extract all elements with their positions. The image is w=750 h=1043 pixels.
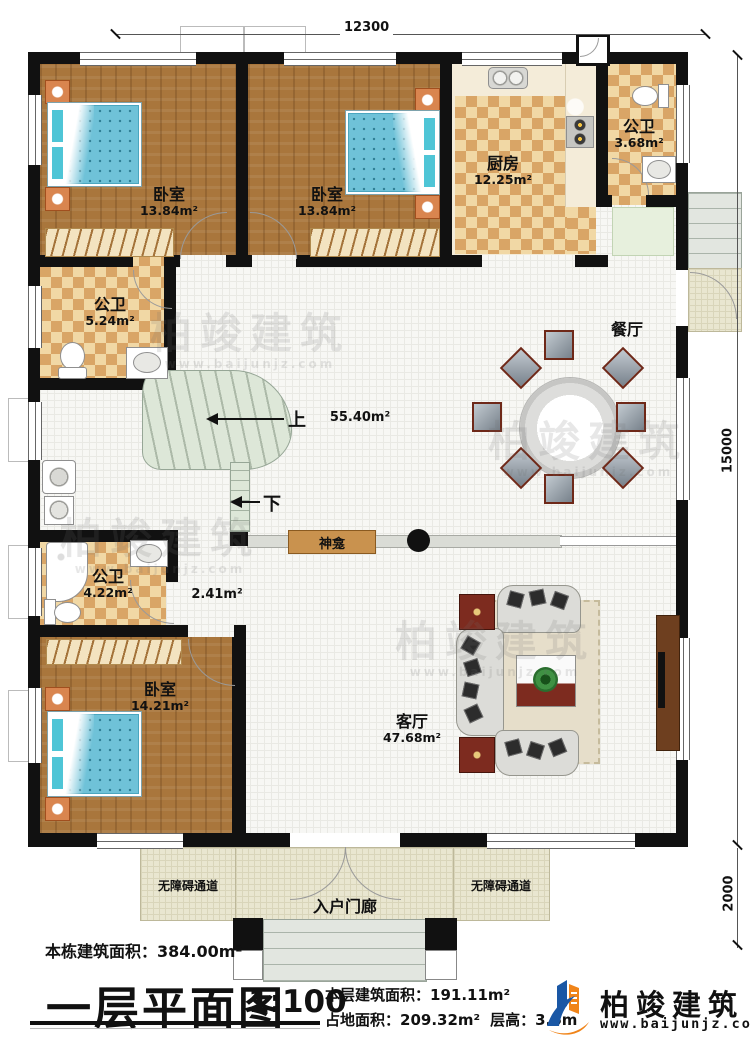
hall-area-label: 55.40m² xyxy=(330,410,390,425)
floor-area-value: 191.11m² xyxy=(430,986,510,1004)
kitchen-tiles2 xyxy=(567,207,596,254)
nightstand-icon xyxy=(45,687,70,711)
dim-line-top xyxy=(115,34,705,35)
kitchen-label: 厨房 12.25m² xyxy=(474,155,532,188)
ramp-right-label: 无障碍通道 xyxy=(471,877,531,894)
side-door-opening xyxy=(676,270,688,326)
pillow xyxy=(51,109,64,143)
side-steps xyxy=(688,192,742,270)
land-area-row: 占地面积：209.32m² 层高：3.6m xyxy=(325,1009,577,1030)
toilet-icon xyxy=(60,342,85,370)
wardrobe-icon xyxy=(45,228,174,257)
wall-bed2-kitchen xyxy=(440,52,452,258)
bed-icon xyxy=(47,102,142,187)
logo-glyph xyxy=(543,978,595,1036)
plant-icon xyxy=(533,667,558,692)
sofa-pillow xyxy=(529,589,547,607)
toilet-icon xyxy=(632,86,658,106)
entry-opening xyxy=(290,833,400,847)
wall-bath-top-bottom1 xyxy=(596,195,612,207)
wall-bed1-bed2 xyxy=(236,52,248,258)
dining-label: 餐厅 xyxy=(611,321,643,339)
stair-up-label: 上 xyxy=(288,406,306,432)
window-bed1 xyxy=(80,52,196,66)
bath-top-landing xyxy=(612,207,674,256)
sink-icon xyxy=(133,352,161,373)
porch-label: 入户门廊 xyxy=(313,893,377,917)
window-left-3 xyxy=(28,402,42,460)
land-area-pair: 占地面积：209.32m² xyxy=(325,1009,480,1030)
dining-chair-icon xyxy=(616,402,646,432)
washing-machine-icon xyxy=(42,460,76,494)
floor-plan-page: 神龛 xyxy=(0,0,750,1043)
porch-column-right-base xyxy=(425,950,457,980)
end-table-icon xyxy=(459,737,495,773)
bed-sheet xyxy=(64,103,94,186)
end-table-icon xyxy=(459,594,495,630)
company-logo-icon xyxy=(543,978,595,1036)
nightstand-icon xyxy=(45,187,70,211)
wardrobe-icon xyxy=(46,639,182,665)
shrine-label: 神龛 xyxy=(319,533,345,552)
bay-top-1 xyxy=(180,26,244,54)
nightstand-icon xyxy=(415,88,440,112)
window-left-4 xyxy=(28,548,42,616)
wardrobe-icon xyxy=(310,228,440,257)
dim-right-label: 15000 xyxy=(721,423,736,479)
window-left-1 xyxy=(28,95,42,165)
living-label: 客厅 47.68m² xyxy=(383,713,441,746)
porch-column-right xyxy=(425,918,457,950)
dim-top-label: 12300 xyxy=(340,20,393,35)
bay-top-2 xyxy=(244,26,306,54)
wall-kitchen-bath xyxy=(596,64,608,207)
pillow xyxy=(51,756,64,790)
nightstand-icon xyxy=(45,797,70,821)
dim-line-bottom-right xyxy=(737,848,738,948)
floor-area-label: 本层建筑面积： xyxy=(325,984,430,1005)
stove-icon xyxy=(566,116,594,148)
bed-sheet xyxy=(64,712,94,796)
dim-bottom-right-label: 2000 xyxy=(722,870,737,918)
bath-mid-label: 公卫 5.24m² xyxy=(85,296,134,329)
wall-bed3-top2 xyxy=(234,625,246,637)
title-underline xyxy=(30,1021,320,1025)
bedroom3-label: 卧室 14.21m² xyxy=(131,681,189,714)
toilet-icon xyxy=(54,602,81,623)
half-wall-window xyxy=(560,536,676,546)
window-right-dining xyxy=(676,378,690,500)
nightstand-icon xyxy=(45,80,70,104)
window-left-5 xyxy=(28,688,42,763)
bath-low-label: 公卫 4.22m² xyxy=(83,568,132,601)
ramp-left-label: 无障碍通道 xyxy=(158,877,218,894)
sofa-pillow xyxy=(462,682,480,700)
corridor-area-label: 2.41m² xyxy=(191,587,242,602)
wall-bath-top-bottom2 xyxy=(646,195,688,207)
column-dot xyxy=(407,529,430,552)
dining-chair-icon xyxy=(472,402,502,432)
laundry-sink-icon xyxy=(44,496,74,525)
bath-top-label: 公卫 3.68m² xyxy=(614,118,663,151)
entry-steps xyxy=(263,919,427,982)
bed-sheet xyxy=(393,111,423,194)
building-area-value: 384.00m² xyxy=(157,942,242,961)
building-area-label: 本栋建筑面积： xyxy=(45,938,157,962)
pillow xyxy=(51,146,64,180)
wall-bed3-top1 xyxy=(28,625,188,637)
building-area-row: 本栋建筑面积： 384.00m² xyxy=(45,938,242,962)
shrine-shelf: 神龛 xyxy=(288,530,376,554)
up-arrow-head xyxy=(206,413,218,425)
dining-chair-icon xyxy=(544,474,574,504)
window-bed2 xyxy=(284,52,396,66)
bed-icon xyxy=(345,110,440,195)
toilet-icon xyxy=(58,367,87,379)
pillow xyxy=(423,117,436,151)
nightstand-icon xyxy=(415,195,440,219)
pillow xyxy=(51,718,64,752)
toilet-icon xyxy=(658,84,669,108)
kitchen-sink-icon xyxy=(488,67,528,89)
floor-area-row: 本层建筑面积： 191.11m² xyxy=(325,984,510,1005)
sink-icon xyxy=(647,160,671,179)
floor-height-label: 层高： xyxy=(490,1011,535,1029)
title-underline-thin xyxy=(30,1028,320,1029)
wall-h3 xyxy=(226,255,252,267)
bed-icon xyxy=(47,711,142,797)
window-left-2 xyxy=(28,286,42,348)
dining-chair-icon xyxy=(544,330,574,360)
window-bath-top xyxy=(676,85,690,163)
window-bed3-bottom xyxy=(97,833,183,849)
pillow xyxy=(423,154,436,188)
bedroom2-label: 卧室 13.84m² xyxy=(298,186,356,219)
land-area-label: 占地面积： xyxy=(325,1011,400,1029)
down-arrow-head xyxy=(230,496,242,508)
window-kitchen xyxy=(462,52,562,66)
bedroom1-label: 卧室 13.84m² xyxy=(140,186,198,219)
up-arrow-line xyxy=(216,418,284,420)
down-arrow-line xyxy=(240,501,260,503)
company-logo-url: www.baijunjz.com xyxy=(600,1016,750,1032)
tv-icon xyxy=(658,652,665,708)
wall-h5 xyxy=(575,255,608,267)
window-living-bottom xyxy=(487,833,635,849)
sink-icon xyxy=(136,544,162,563)
stair-down-label: 下 xyxy=(263,490,281,516)
land-area-value: 209.32m² xyxy=(400,1011,480,1029)
dim-line-right xyxy=(737,55,738,845)
